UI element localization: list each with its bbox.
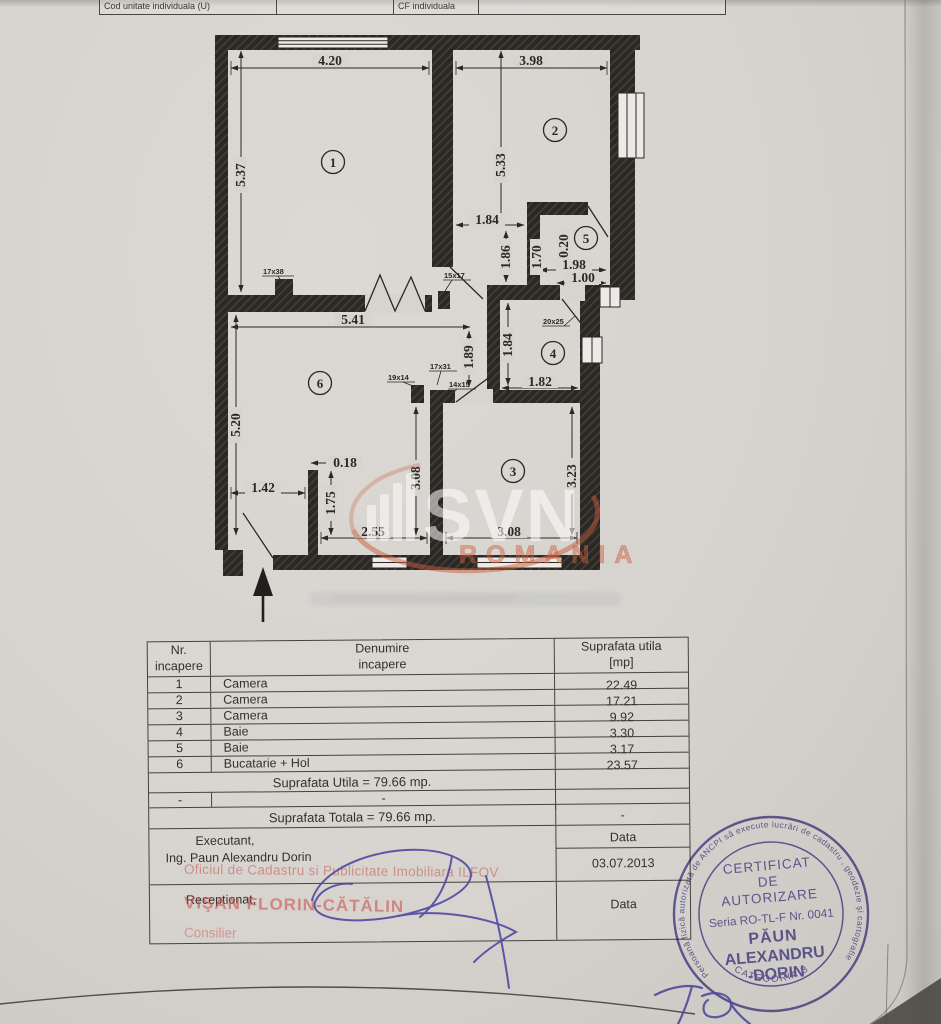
suprafata-totala-total: Suprafata Totala = 79.66 mp.: [149, 805, 555, 829]
row-area: 22.49: [554, 673, 688, 689]
col2-header-line2: incapere: [211, 655, 554, 674]
page-fold-line: [0, 987, 695, 1014]
dim-1-42: 1.42: [251, 480, 275, 495]
consilier-stamp-text: Consilier: [184, 925, 304, 942]
stamp-line-paun: PĂUN: [748, 925, 799, 948]
dim-1-70: 1.70: [529, 245, 544, 269]
dim-1-84-hall: 1.84: [475, 212, 499, 227]
dim-0-18: 0.18: [333, 455, 357, 470]
row-nr: 1: [148, 677, 210, 693]
row-nr: 6: [149, 757, 211, 773]
tag-14x15: 14x15: [449, 380, 470, 389]
room-6-number: 6: [317, 376, 324, 391]
row-name: Bucatarie + Hol: [211, 754, 555, 772]
header-cell-cf: CF individuala: [393, 0, 479, 15]
scan-right-shadow: [903, 0, 941, 1024]
dim-3-98: 3.98: [519, 53, 543, 68]
table-header-row: Nr.incapere Denumireincapere Suprafata u…: [148, 638, 688, 677]
dim-1-75: 1.75: [323, 491, 338, 515]
dim-5-33: 5.33: [493, 153, 508, 177]
dash-cell: -: [211, 790, 555, 807]
scanned-cadastral-document: Cod unitate individuala (U) CF individua…: [0, 0, 941, 1024]
north-entry-arrow: [253, 567, 273, 622]
col1-header-line1: Nr.: [148, 642, 210, 659]
header-cell-cod-unitate: Cod unitate individuala (U): [99, 0, 277, 15]
dim-5-37: 5.37: [233, 163, 248, 187]
room-2-number: 2: [552, 123, 559, 138]
row-area: 9.92: [554, 705, 688, 721]
authorization-stamp: Persoană fizică autorizată de ANCPI să e…: [663, 806, 879, 1022]
dim-1-84-room4: 1.84: [500, 333, 515, 357]
row-nr: 4: [148, 725, 210, 741]
tag-20x25: 20x25: [543, 317, 564, 326]
row-area: 3.17: [555, 737, 689, 753]
dim-5-41: 5.41: [341, 312, 365, 327]
dim-1-89: 1.89: [461, 345, 476, 369]
watermark-country: ROMANIA: [459, 541, 641, 569]
col1-header-line2: incapere: [148, 658, 210, 675]
header-cell-empty-1: [276, 0, 394, 15]
tag-15x17: 15x17: [444, 271, 465, 280]
row-name: Baie: [211, 738, 555, 756]
tag-17x38: 17x38: [263, 267, 284, 276]
stamp-line-seria: Seria RO-TL-F Nr. 0041: [708, 906, 834, 931]
col3-header-line1: Suprafata utila: [555, 638, 688, 655]
tag-19x14: 19x14: [388, 373, 410, 382]
room-5-number: 5: [583, 231, 590, 246]
ghost-text-smudge: [310, 592, 620, 606]
tag-17x31: 17x31: [430, 362, 451, 371]
room-1-number: 1: [330, 155, 337, 170]
row-name: Baie: [210, 722, 554, 740]
row-nr: 2: [148, 693, 210, 709]
row-name: Camera: [210, 690, 554, 708]
floor-plan: 4.20 3.98 5.37 5.33 1.84 1.86 1.70 0.20 …: [215, 35, 650, 625]
dash-cell: -: [149, 793, 211, 808]
dim-4-20: 4.20: [318, 53, 342, 68]
dim-1-86: 1.86: [498, 245, 513, 269]
row-area: 17.21: [554, 689, 688, 705]
row-area: 3.30: [554, 721, 688, 737]
dim-1-00: 1.00: [571, 270, 595, 285]
dim-0-20: 0.20: [556, 234, 571, 258]
paper-crease-line: [886, 944, 888, 1024]
room-4-number: 4: [550, 346, 557, 361]
dim-5-20: 5.20: [228, 413, 243, 437]
stamp-line-de: DE: [757, 873, 779, 890]
row-area: 23.57: [555, 753, 689, 769]
row-nr: 3: [148, 709, 210, 725]
header-cell-empty-2: [478, 0, 726, 15]
row-name: Camera: [210, 674, 554, 692]
document-header-strip: Cod unitate individuala (U) CF individua…: [100, 0, 726, 15]
col3-header-line2: [mp]: [555, 654, 688, 671]
row-nr: 5: [149, 741, 211, 757]
dim-1-82: 1.82: [528, 374, 552, 389]
row-name: Camera: [210, 706, 554, 724]
suprafata-utila-total: Suprafata Utila = 79.66 mp.: [149, 770, 555, 793]
stamp-line-autorizare: AUTORIZARE: [721, 886, 819, 909]
